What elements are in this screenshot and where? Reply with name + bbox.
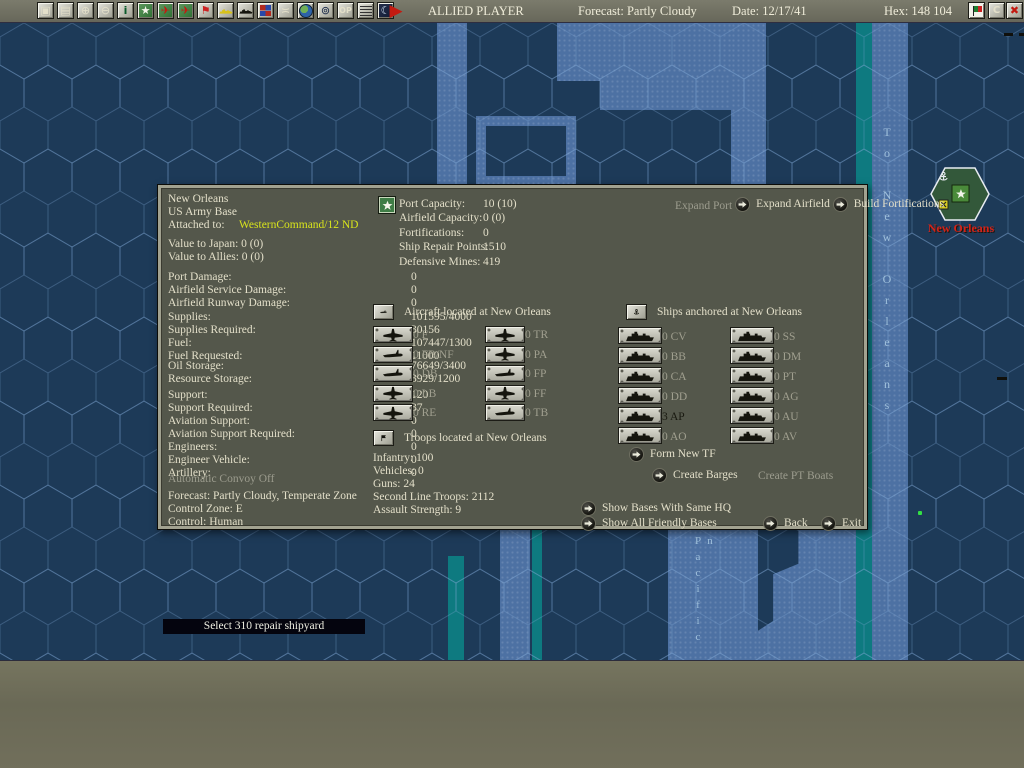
ship-icon xyxy=(623,329,657,342)
second-line-stat: Second Line Troops: 2112 xyxy=(373,491,547,504)
status-bar: ◀ ▶ New Orleans Port: 10 (10) Airfield:0… xyxy=(0,660,1024,768)
warship-icon[interactable] xyxy=(217,2,234,19)
ship-icon xyxy=(735,389,769,402)
value-to-japan: Value to Japan: 0 (0) xyxy=(168,238,264,251)
op-report-icon[interactable]: OP xyxy=(337,2,354,19)
ships-section: Ships anchored at New Orleans 0 CV 0 SS … xyxy=(618,304,802,447)
aircraft-type-button-tr[interactable] xyxy=(485,326,525,343)
plane-icon xyxy=(494,368,516,379)
allied-air-icon[interactable]: ✈ xyxy=(177,2,194,19)
arrow-icon xyxy=(629,447,644,462)
ship-icon xyxy=(623,389,657,402)
star-icon xyxy=(382,200,393,211)
assault-strength-stat: Assault Strength: 9 xyxy=(373,504,547,517)
hex-coordinates: Hex: 148 104 xyxy=(884,4,952,19)
aircraft-section-title: Aircraft located at New Orleans xyxy=(404,306,551,319)
forecast-label: Forecast: Partly Cloudy xyxy=(578,4,697,19)
save-glyph: ▣ xyxy=(40,5,50,16)
value-to-allies: Value to Allies: 0 (0) xyxy=(168,251,264,264)
ship-type-button-ag[interactable] xyxy=(730,387,774,404)
arrow-icon xyxy=(833,197,848,212)
engineer-bridge-icon[interactable]: ≍ xyxy=(277,2,294,19)
aircraft-type-button-fbnf[interactable] xyxy=(373,346,413,363)
ship-type-button-ca[interactable] xyxy=(618,367,662,384)
signal-glyph xyxy=(360,6,372,16)
ship-icon xyxy=(735,409,769,422)
railroad-label: n Pacific xyxy=(692,535,716,660)
base-hex-label: New Orleans xyxy=(918,221,1004,236)
map-canal-a xyxy=(448,556,464,660)
ship-type-button-ap[interactable] xyxy=(618,407,662,424)
attached-label: Attached to: xyxy=(168,219,225,231)
japanese-air-icon[interactable]: ✈ xyxy=(157,2,174,19)
arrow-icon xyxy=(652,468,667,483)
aircraft-type-button-ff[interactable] xyxy=(485,385,525,402)
zoom-out-icon[interactable]: ⊖ xyxy=(97,2,114,19)
ships-section-title: Ships anchored at New Orleans xyxy=(657,306,802,319)
map-canal-c xyxy=(532,530,542,660)
create-barges-action[interactable]: Create Barges xyxy=(652,468,738,483)
world-map-icon[interactable] xyxy=(297,2,314,19)
map-unit-dot xyxy=(918,511,922,515)
game-screen: ▣ ▤ ⊕ ⊖ i ★ ✈ ✈ ⚑ ≍ ⊚ OP ☾ ▶ ALLIED PLAY… xyxy=(0,0,1024,768)
show-same-hq-action[interactable]: Show Bases With Same HQ xyxy=(581,501,731,516)
aircraft-type-button-pa[interactable] xyxy=(485,346,525,363)
control-zone-line: Control Zone: E xyxy=(168,503,357,516)
ship-type-button-ao[interactable] xyxy=(618,427,662,444)
plane-icon xyxy=(381,406,405,420)
plane-icon xyxy=(382,349,404,360)
aircraft-type-button-db[interactable] xyxy=(373,365,413,382)
plane-icon xyxy=(493,328,517,342)
weather-line: Forecast: Partly Cloudy, Temperate Zone xyxy=(168,490,357,503)
base-values: Value to Japan: 0 (0) Value to Allies: 0… xyxy=(168,238,264,264)
ship-icon xyxy=(623,369,657,382)
player-label: ALLIED PLAYER xyxy=(428,4,524,19)
aircraft-type-button-lb[interactable] xyxy=(373,385,413,402)
damage-stats: Port Damage:0 Airfield Service Damage:0 … xyxy=(168,271,290,310)
anchor-icon xyxy=(633,306,640,318)
troops-list-button[interactable] xyxy=(373,430,394,446)
ship-icon xyxy=(735,349,769,362)
flag-icon xyxy=(380,432,387,444)
run-turn-button[interactable]: ▶ xyxy=(386,1,406,21)
close-button[interactable]: ✖ xyxy=(1006,2,1023,19)
map-river-upper xyxy=(731,23,766,185)
warship-glyph xyxy=(219,7,233,15)
info-icon[interactable]: i xyxy=(117,2,134,19)
aircraft-type-button-fp[interactable] xyxy=(485,365,525,382)
arrow-icon xyxy=(581,501,596,516)
orders-icon[interactable]: ▤ xyxy=(57,2,74,19)
ship-type-button-cv[interactable] xyxy=(618,327,662,344)
ship-icon xyxy=(623,409,657,422)
build-actions: Expand Port Expand Airfield Build Fortif… xyxy=(656,197,944,214)
base-info-dialog: New Orleans US Army Base Attached to:Wes… xyxy=(157,184,868,530)
ship-type-button-dm[interactable] xyxy=(730,347,774,364)
base-star-icon[interactable]: ★ xyxy=(137,2,154,19)
build-fortifications-action[interactable]: Build Fortifications xyxy=(833,197,944,212)
base-type: US Army Base xyxy=(168,206,237,219)
convoy-toggle[interactable]: Automatic Convoy Off xyxy=(168,473,274,486)
exit-button[interactable]: Exit xyxy=(821,516,861,531)
top-toolbar: ▣ ▤ ⊕ ⊖ i ★ ✈ ✈ ⚑ ≍ ⊚ OP ☾ ▶ ALLIED PLAY… xyxy=(0,0,1024,23)
arrow-icon xyxy=(763,516,778,531)
plane-icon xyxy=(493,386,517,400)
ship-type-button-av[interactable] xyxy=(730,427,774,444)
map-mark xyxy=(1019,33,1024,36)
supply-stats: Supplies:101595/4000 Supplies Required:3… xyxy=(168,311,256,363)
aircraft-type-button-tb[interactable] xyxy=(485,404,525,421)
map-mark xyxy=(997,377,1007,380)
base-symbol-icon xyxy=(378,196,396,214)
arrow-icon xyxy=(581,516,596,531)
date-label: Date: 12/17/41 xyxy=(732,4,807,19)
zoom-in-icon[interactable]: ⊕ xyxy=(77,2,94,19)
create-pt-boats-action: Create PT Boats xyxy=(758,470,833,483)
guns-stat: Guns: 24 xyxy=(373,478,547,491)
control-line: Control: Human xyxy=(168,516,357,529)
aircraft-section: Aircraft located at New Orleans 0 F 0 TR… xyxy=(373,304,551,424)
ship-type-button-pt[interactable] xyxy=(730,367,774,384)
ship-type-button-au[interactable] xyxy=(730,407,774,424)
support-stats: Support:120 Support Required:37 Aviation… xyxy=(168,389,295,480)
capacity-stats: Port Capacity:10 (10) Airfield Capacity:… xyxy=(399,197,488,269)
base-identity: New Orleans US Army Base Attached to:Wes… xyxy=(168,193,237,232)
auto-flag-button[interactable] xyxy=(968,2,985,19)
plane-icon xyxy=(382,368,404,379)
ship-icon xyxy=(623,429,657,442)
troops-section: Troops located at New Orleans Infantry: … xyxy=(373,430,547,517)
ship-icon xyxy=(735,329,769,342)
task-force-glyph xyxy=(239,7,253,15)
attached-hq-link[interactable]: WesternCommand/12 ND xyxy=(239,219,359,232)
strategic-map-icon[interactable]: ⊚ xyxy=(317,2,334,19)
task-force-icon[interactable] xyxy=(237,2,254,19)
route-label: To New Orleans xyxy=(879,125,894,425)
ship-icon xyxy=(623,349,657,362)
ship-type-button-dd[interactable] xyxy=(618,387,662,404)
hover-tooltip: Select 310 repair shipyard xyxy=(163,619,365,634)
industry-grid-icon[interactable] xyxy=(257,2,274,19)
map-canal-b xyxy=(500,530,530,660)
arrow-icon xyxy=(821,516,836,531)
arrow-icon xyxy=(735,197,750,212)
troops-section-title: Troops located at New Orleans xyxy=(404,432,547,445)
form-new-tf-action[interactable]: Form New TF xyxy=(629,447,716,462)
back-button[interactable]: Back xyxy=(763,516,808,531)
aircraft-list-button[interactable] xyxy=(373,304,394,320)
aircraft-type-button-re[interactable] xyxy=(373,404,413,421)
ship-type-button-ss[interactable] xyxy=(730,327,774,344)
plane-icon xyxy=(493,347,517,361)
signal-intel-icon[interactable] xyxy=(357,2,374,19)
map-basin-inner xyxy=(486,126,566,176)
show-all-friendly-action[interactable]: Show All Friendly Bases xyxy=(581,516,717,531)
storage-stats: Oil Storage:76649/3400 Resource Storage:… xyxy=(168,360,252,386)
base-name: New Orleans xyxy=(168,193,237,206)
plane-icon xyxy=(381,328,405,342)
map-mark xyxy=(1004,33,1013,36)
plane-icon xyxy=(380,306,387,318)
aircraft-type-button-f[interactable] xyxy=(373,326,413,343)
save-icon[interactable]: ▣ xyxy=(37,2,54,19)
vehicles-stat: Vehicles: 0 xyxy=(373,465,547,478)
ship-icon xyxy=(735,369,769,382)
base-footer-info: Forecast: Partly Cloudy, Temperate Zone … xyxy=(168,490,357,529)
ship-icon xyxy=(735,429,769,442)
ship-type-button-bb[interactable] xyxy=(618,347,662,364)
ground-flag-icon[interactable]: ⚑ xyxy=(197,2,214,19)
expand-port-action: Expand Port xyxy=(656,199,732,214)
plane-icon xyxy=(381,386,405,400)
industry-glyph xyxy=(260,5,271,16)
plane-icon xyxy=(494,407,516,418)
turn-flag-icon xyxy=(972,6,982,16)
infantry-stat: Infantry: 100 xyxy=(373,452,547,465)
expand-airfield-action[interactable]: Expand Airfield xyxy=(735,197,830,212)
close-icon: ✖ xyxy=(1010,5,1019,16)
globe-glyph xyxy=(299,4,313,18)
map-channel xyxy=(437,23,467,185)
ships-list-button[interactable] xyxy=(626,304,647,320)
play-icon: ▶ xyxy=(389,1,402,21)
map-delta xyxy=(757,530,872,660)
combat-report-button[interactable]: C xyxy=(988,2,1005,19)
